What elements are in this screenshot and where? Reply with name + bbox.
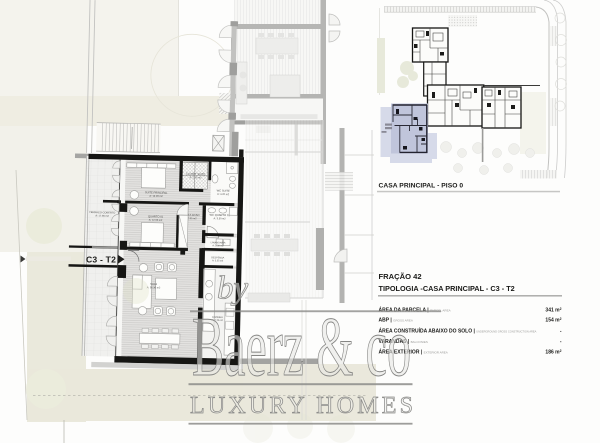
svg-text:A: 17.09 m2: A: 17.09 m2 [95,215,109,218]
svg-text:A: 36.36 m2: A: 36.36 m2 [147,286,161,289]
svg-text:A: 2.30 m2: A: 2.30 m2 [212,244,224,247]
svg-text:LAVANDARIA: LAVANDARIA [211,241,226,244]
svg-text:FRAÇÃO 42: FRAÇÃO 42 [379,272,422,281]
svg-text:Baerz & co: Baerz & co [192,300,411,394]
svg-text:DESPENSA: DESPENSA [211,256,224,259]
svg-text:A: 4.20 m2: A: 4.20 m2 [217,193,230,196]
svg-text:154 m2: 154 m2 [545,317,561,324]
svg-text:TIPOLOGIA -CASA PRINCIPAL - C3: TIPOLOGIA -CASA PRINCIPAL - C3 - T2 [379,284,515,293]
svg-text:341 m2: 341 m2 [545,307,561,314]
svg-text:A: 16.28 m2: A: 16.28 m2 [149,195,163,198]
svg-text:A: 3.30 m2: A: 3.30 m2 [214,217,227,220]
svg-text:186 m2: 186 m2 [545,349,561,356]
svg-text:A: 3.35 m2: A: 3.35 m2 [212,259,224,262]
svg-text:A: 12.05 m2: A: 12.05 m2 [149,219,163,222]
svg-text:A: 2.95 m2: A: 2.95 m2 [189,176,202,179]
svg-text:CASA PRINCIPAL - PISO 0: CASA PRINCIPAL - PISO 0 [379,183,464,190]
svg-text:C3 - T2: C3 - T2 [86,255,116,265]
